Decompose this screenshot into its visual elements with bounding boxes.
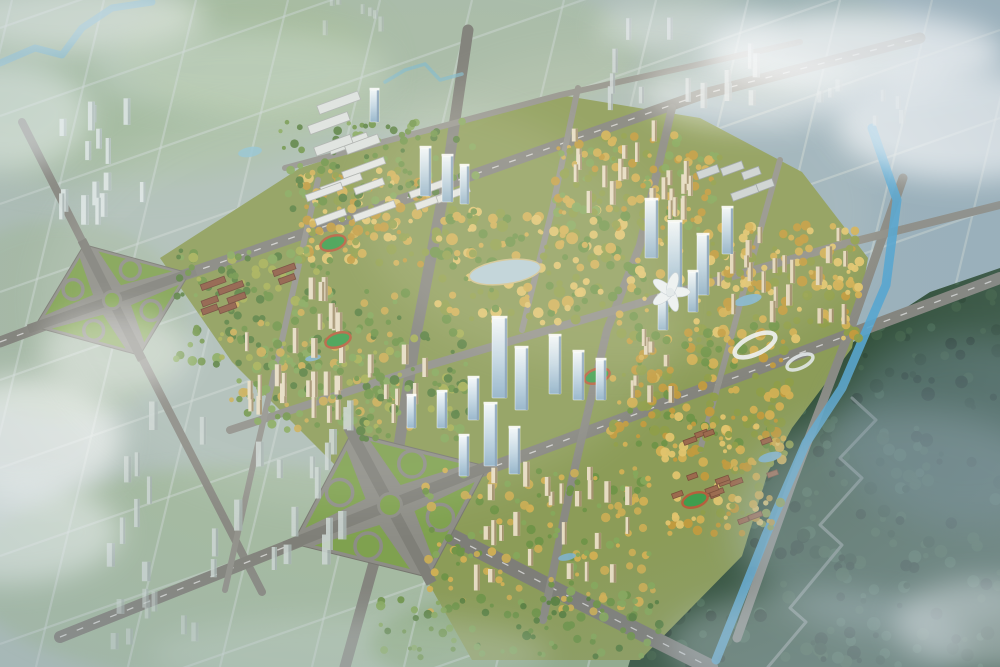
city-render-canvas (0, 0, 1000, 667)
aerial-masterplan-render (0, 0, 1000, 667)
edge-vignette (0, 0, 1000, 667)
